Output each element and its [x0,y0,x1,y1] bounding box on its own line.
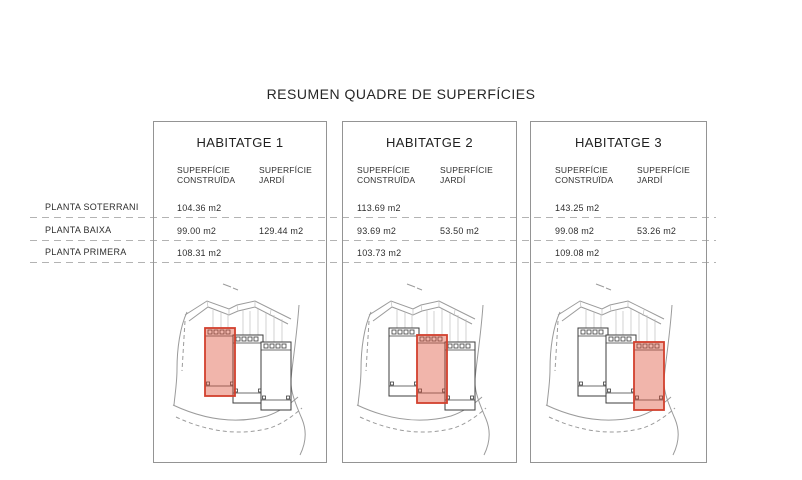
site-plan-drawing [171,279,321,457]
row-label-planta-soterrani: PLANTA SOTERRANI [45,202,139,212]
column-header-construida: SUPERFÍCIE CONSTRUÏDA [177,165,235,185]
page-title: RESUMEN QUADRE DE SUPERFÍCIES [0,86,802,102]
value-baixa-jardi: 129.44 m2 [259,226,303,236]
site-plan-drawing [544,279,694,457]
row-label-planta-primera: PLANTA PRIMERA [45,247,127,257]
row-label-planta-baixa: PLANTA BAIXA [45,225,111,235]
highlighted-unit-middle [417,335,447,403]
value-primera-construida: 108.31 m2 [177,248,221,258]
column-header-construida: SUPERFÍCIE CONSTRUÏDA [555,165,613,185]
column-header-jardi: SUPERFÍCIE JARDÍ [440,165,493,185]
value-soterrani-construida: 143.25 m2 [555,203,599,213]
value-baixa-jardi: 53.50 m2 [440,226,479,236]
panel-title: HABITATGE 3 [531,135,706,150]
habitatge-panel-3: HABITATGE 3 SUPERFÍCIE CONSTRUÏDA SUPERF… [530,121,707,463]
column-header-construida: SUPERFÍCIE CONSTRUÏDA [357,165,415,185]
habitatge-panel-1: HABITATGE 1 SUPERFÍCIE CONSTRUÏDA SUPERF… [153,121,327,463]
value-baixa-construida: 99.00 m2 [177,226,216,236]
value-baixa-jardi: 53.26 m2 [637,226,676,236]
panel-title: HABITATGE 2 [343,135,516,150]
habitatge-panel-2: HABITATGE 2 SUPERFÍCIE CONSTRUÏDA SUPERF… [342,121,517,463]
site-plan-drawing [355,279,505,457]
value-baixa-construida: 99.08 m2 [555,226,594,236]
document-sheet: RESUMEN QUADRE DE SUPERFÍCIES PLANTA SOT… [0,0,802,480]
panel-title: HABITATGE 1 [154,135,326,150]
column-header-jardi: SUPERFÍCIE JARDÍ [259,165,312,185]
value-primera-construida: 103.73 m2 [357,248,401,258]
value-soterrani-construida: 104.36 m2 [177,203,221,213]
value-soterrani-construida: 113.69 m2 [357,203,401,213]
value-baixa-construida: 93.69 m2 [357,226,396,236]
value-primera-construida: 109.08 m2 [555,248,599,258]
highlighted-unit-right [634,342,664,410]
column-header-jardi: SUPERFÍCIE JARDÍ [637,165,690,185]
highlighted-unit-left [205,328,235,396]
